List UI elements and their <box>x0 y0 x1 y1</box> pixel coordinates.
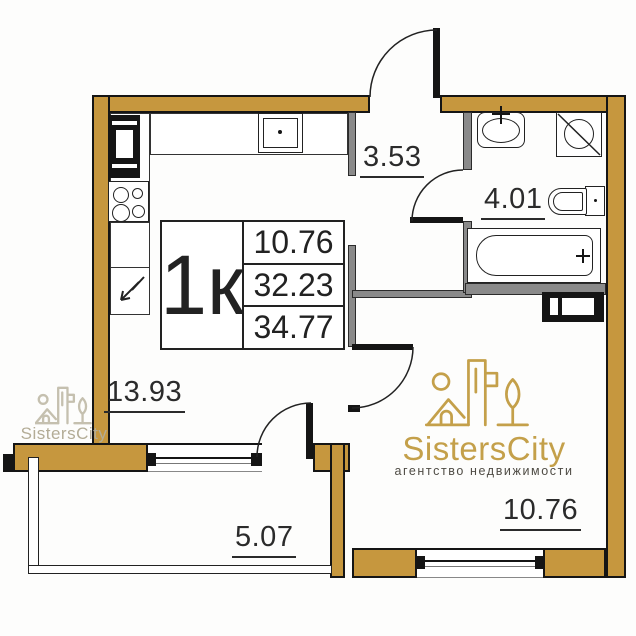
kitchen-cabinet-arrow-icon <box>121 277 144 300</box>
logo-sun-icon <box>433 374 449 390</box>
brand-tagline: агентство недвижимости <box>384 464 584 478</box>
area-value-row: 34.77 <box>244 305 343 348</box>
watermark-building-icon <box>58 388 74 423</box>
watermark-house-icon <box>35 409 58 423</box>
room-label-kitchen-living: 13.93 <box>104 376 185 413</box>
balcony-door-arc <box>257 403 311 457</box>
logo-tree-icon <box>498 380 528 425</box>
washing-machine-slash <box>558 114 600 155</box>
logo-house-icon <box>426 400 468 425</box>
entry-door-arc <box>370 30 437 97</box>
floor-plan: 1к 10.76 32.23 34.77 3.53 4.01 13.93 5.0… <box>0 0 636 636</box>
area-values-column: 10.76 32.23 34.77 <box>244 222 343 348</box>
room-label-balcony: 5.07 <box>232 521 296 558</box>
bedroom-door-arc <box>352 347 413 408</box>
room-label-hallway: 3.53 <box>360 141 424 178</box>
brand-name: SistersCity <box>394 430 574 468</box>
area-value-row: 32.23 <box>244 263 343 306</box>
watermark-logo-graphic <box>35 382 93 425</box>
brand-logo-graphic <box>425 350 533 428</box>
watermark-tree-icon <box>74 398 90 423</box>
area-value-row: 10.76 <box>244 222 343 263</box>
room-label-bathroom: 4.01 <box>481 183 545 220</box>
watermark-brand-name: SistersCity <box>12 424 116 444</box>
logo-building-icon <box>468 361 496 425</box>
watermark-sun-icon <box>39 395 48 404</box>
unit-type-label: 1к <box>162 222 244 348</box>
room-label-bedroom: 10.76 <box>500 494 581 531</box>
apartment-info-box: 1к 10.76 32.23 34.77 <box>160 220 345 350</box>
